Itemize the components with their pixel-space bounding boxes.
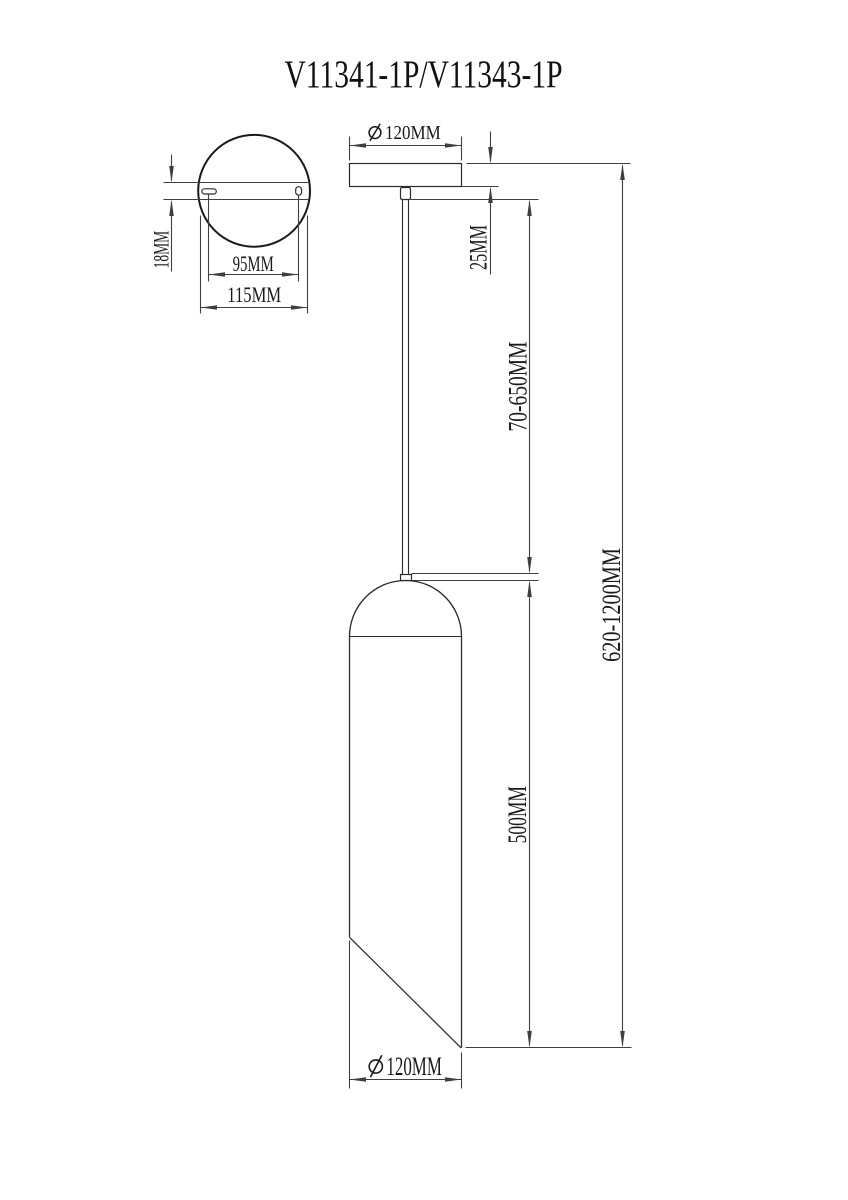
- svg-text:95MM: 95MM: [233, 251, 274, 276]
- svg-text:120MM: 120MM: [386, 1052, 442, 1081]
- svg-text:25MM: 25MM: [466, 225, 493, 270]
- svg-text:V11341-1P/V11343-1P: V11341-1P/V11343-1P: [285, 53, 563, 96]
- svg-text:620-1200MM: 620-1200MM: [597, 548, 626, 662]
- svg-text:120MM: 120MM: [385, 122, 441, 144]
- svg-text:115MM: 115MM: [227, 282, 281, 307]
- svg-text:500MM: 500MM: [503, 786, 532, 843]
- svg-text:70-650MM: 70-650MM: [504, 342, 533, 432]
- svg-text:18MM: 18MM: [148, 231, 173, 269]
